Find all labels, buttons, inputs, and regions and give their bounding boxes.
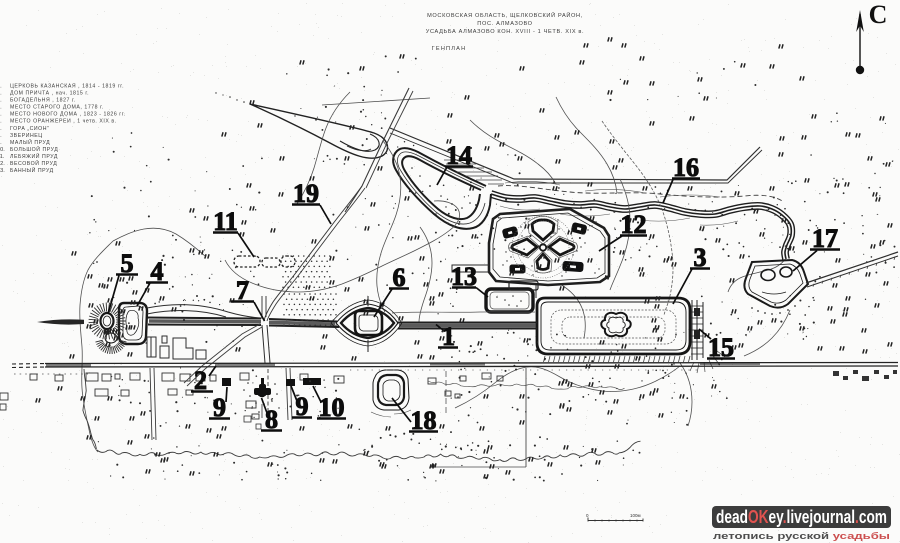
svg-text:ГЕНПЛАН: ГЕНПЛАН [432,46,467,52]
svg-text:БАННЫЙ ПРУД: БАННЫЙ ПРУД [10,166,54,174]
svg-text:13.: 13. [0,168,5,174]
svg-text:БОГАДЕЛЬНЯ , 1827 г.: БОГАДЕЛЬНЯ , 1827 г. [10,98,76,104]
svg-text:ДОМ ПРИЧТА , нач. 1815 г.: ДОМ ПРИЧТА , нач. 1815 г. [10,91,89,97]
svg-text:МЕСТО СТАРОГО ДОМА, 1778 г.: МЕСТО СТАРОГО ДОМА, 1778 г. [10,105,104,111]
svg-text:МЕСТО НОВОГО ДОМА , 1823 - 1: МЕСТО НОВОГО ДОМА , 1823 - 1826 гг. [10,112,126,118]
svg-text:12.: 12. [0,161,5,167]
svg-text:ЛЕБЯЖИЙ ПРУД: ЛЕБЯЖИЙ ПРУД [10,152,58,160]
svg-text:11.: 11. [0,154,5,160]
svg-text:100м: 100м [630,513,641,518]
svg-text:летопись русской усадьбы: летопись русской усадьбы [713,531,890,542]
svg-text:МЕСТО ОРАНЖЕРЕИ , 1 четв. XIX: МЕСТО ОРАНЖЕРЕИ , 1 четв. XIX в. [10,119,117,125]
svg-text:ГОРА „СИОН”: ГОРА „СИОН” [10,126,49,132]
svg-text:10.: 10. [0,147,5,153]
svg-text:ВЕСОВОЙ ПРУД: ВЕСОВОЙ ПРУД [10,159,57,167]
svg-text:ЗВЕРИНЕЦ: ЗВЕРИНЕЦ [10,133,43,139]
svg-text:deadOKey.livejournal.com: deadOKey.livejournal.com [716,507,887,527]
svg-text:УСАДЬБА АЛМАЗОВО КОН. XVII: УСАДЬБА АЛМАЗОВО КОН. XVIII - 1 ЧЕТВ. XI… [426,29,585,35]
svg-text:С: С [869,0,888,29]
svg-text:МАЛЫЙ ПРУД: МАЛЫЙ ПРУД [10,138,50,146]
svg-text:БОЛЬШОЙ ПРУД: БОЛЬШОЙ ПРУД [10,145,58,153]
svg-text:ЦЕРКОВЬ КАЗАНСКАЯ , 1814 - 18: ЦЕРКОВЬ КАЗАНСКАЯ , 1814 - 1819 гг. [10,84,124,90]
svg-text:ПОС. АЛМАЗОВО: ПОС. АЛМАЗОВО [477,21,532,27]
svg-text:МОСКОВСКАЯ ОБЛАСТЬ, ЩЕЛКОВСКИ: МОСКОВСКАЯ ОБЛАСТЬ, ЩЕЛКОВСКИЙ РАЙОН, [427,11,583,19]
